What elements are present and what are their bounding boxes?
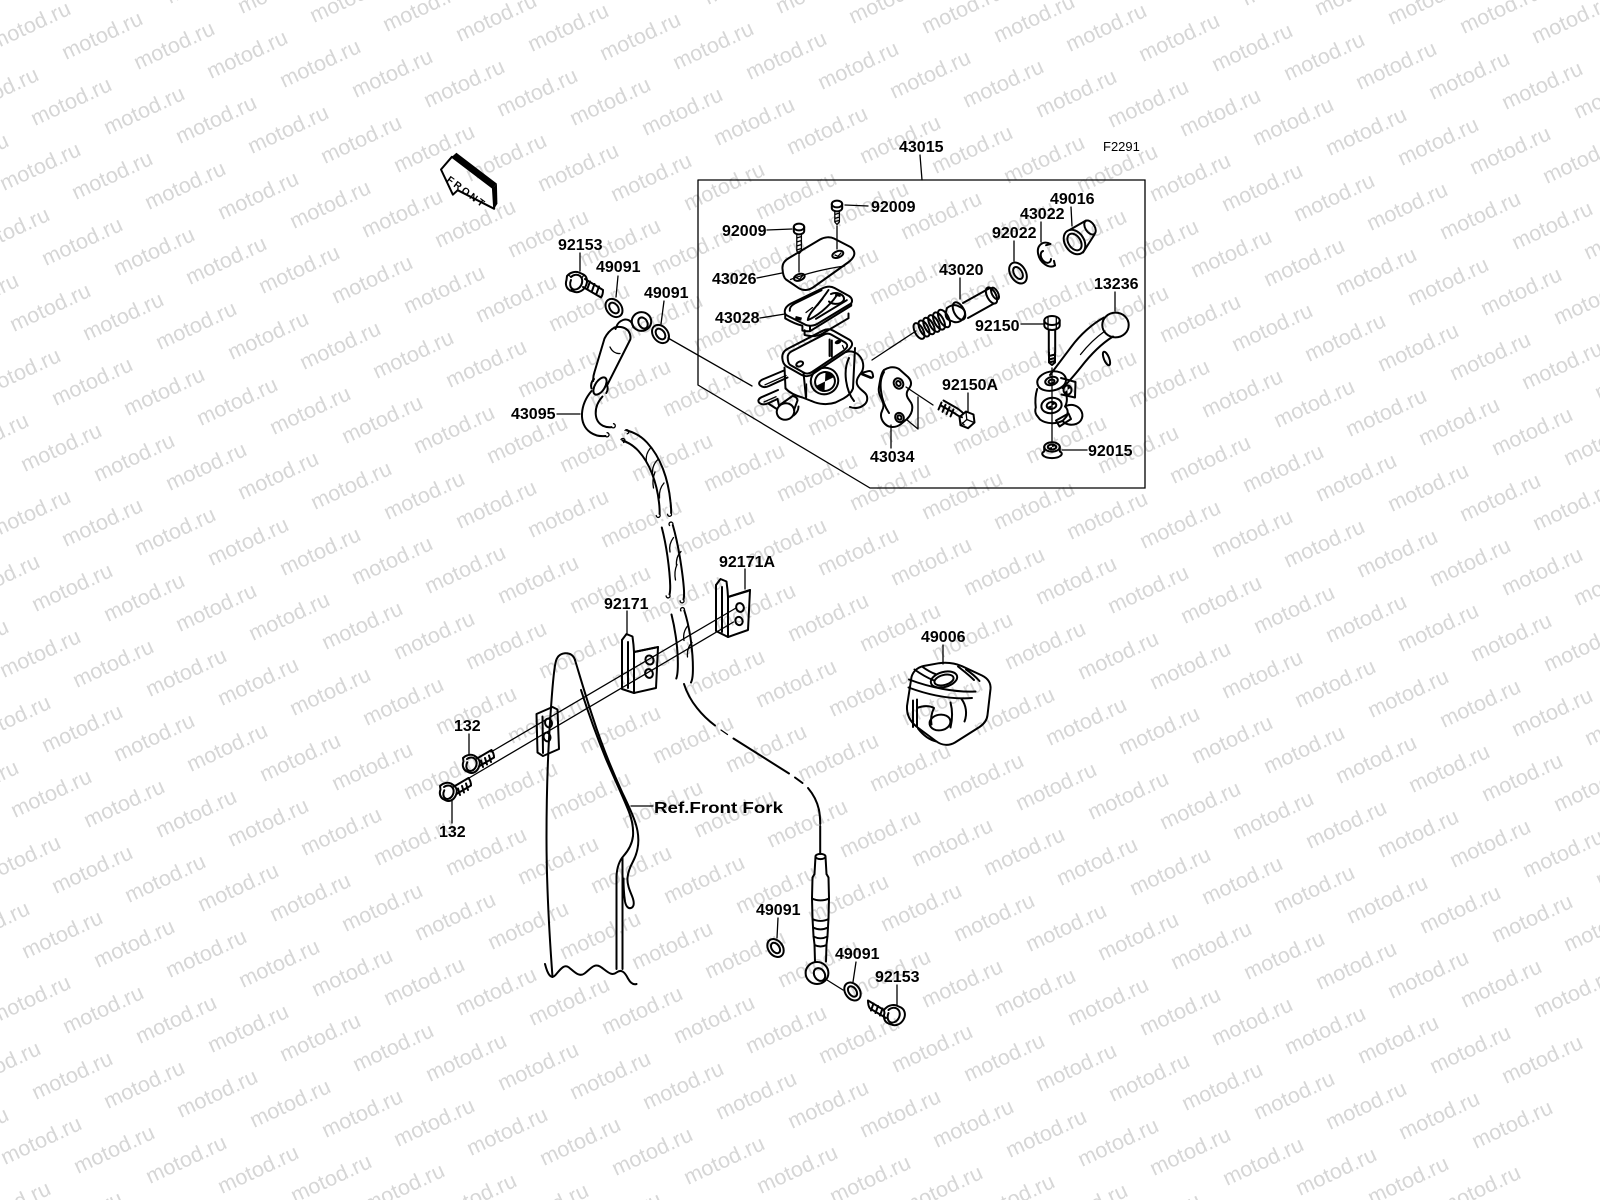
svg-text:49091: 49091 — [756, 902, 801, 919]
svg-text:motod.ru: motod.ru — [970, 1169, 1058, 1200]
svg-text:motod.ru: motod.ru — [360, 1158, 448, 1200]
svg-text:43020: 43020 — [939, 262, 984, 279]
svg-text:43034: 43034 — [870, 449, 915, 466]
svg-text:92171A: 92171A — [719, 554, 775, 571]
svg-text:49091: 49091 — [596, 259, 641, 276]
svg-text:92009: 92009 — [871, 199, 916, 216]
svg-text:132: 132 — [439, 824, 466, 841]
svg-text:92153: 92153 — [558, 237, 603, 254]
svg-text:43026: 43026 — [712, 271, 757, 288]
svg-text:49006: 49006 — [921, 629, 966, 646]
svg-text:motod.ru: motod.ru — [845, 0, 933, 29]
svg-text:motod.ru: motod.ru — [111, 1196, 199, 1200]
svg-text:92171: 92171 — [604, 596, 649, 613]
svg-text:motod.ru: motod.ru — [1528, 0, 1600, 49]
svg-text:92153: 92153 — [875, 969, 920, 986]
svg-text:motod.ru: motod.ru — [0, 1176, 54, 1200]
svg-text:13236: 13236 — [1094, 276, 1139, 293]
svg-text:92009: 92009 — [722, 223, 767, 240]
svg-text:92150: 92150 — [975, 318, 1020, 335]
svg-text:43015: 43015 — [899, 139, 944, 156]
svg-text:49091: 49091 — [644, 285, 689, 302]
svg-text:43022: 43022 — [1020, 206, 1065, 223]
svg-text:motod.ru: motod.ru — [1166, 0, 1254, 1]
svg-text:132: 132 — [454, 718, 481, 735]
svg-text:92022: 92022 — [992, 225, 1037, 242]
svg-text:43095: 43095 — [511, 406, 556, 423]
svg-text:49016: 49016 — [1050, 191, 1095, 208]
svg-text:motod.ru: motod.ru — [650, 1196, 738, 1200]
svg-text:motod.ru: motod.ru — [432, 1168, 520, 1200]
svg-text:Ref.Front Fork: Ref.Front Fork — [654, 800, 783, 817]
svg-text:43028: 43028 — [715, 310, 760, 327]
svg-text:motod.ru: motod.ru — [287, 1149, 375, 1200]
svg-text:F2291: F2291 — [1103, 139, 1140, 154]
svg-text:49091: 49091 — [835, 946, 880, 963]
svg-text:motod.ru: motod.ru — [628, 0, 716, 1]
svg-text:92015: 92015 — [1088, 443, 1133, 460]
svg-text:92150A: 92150A — [942, 377, 998, 394]
